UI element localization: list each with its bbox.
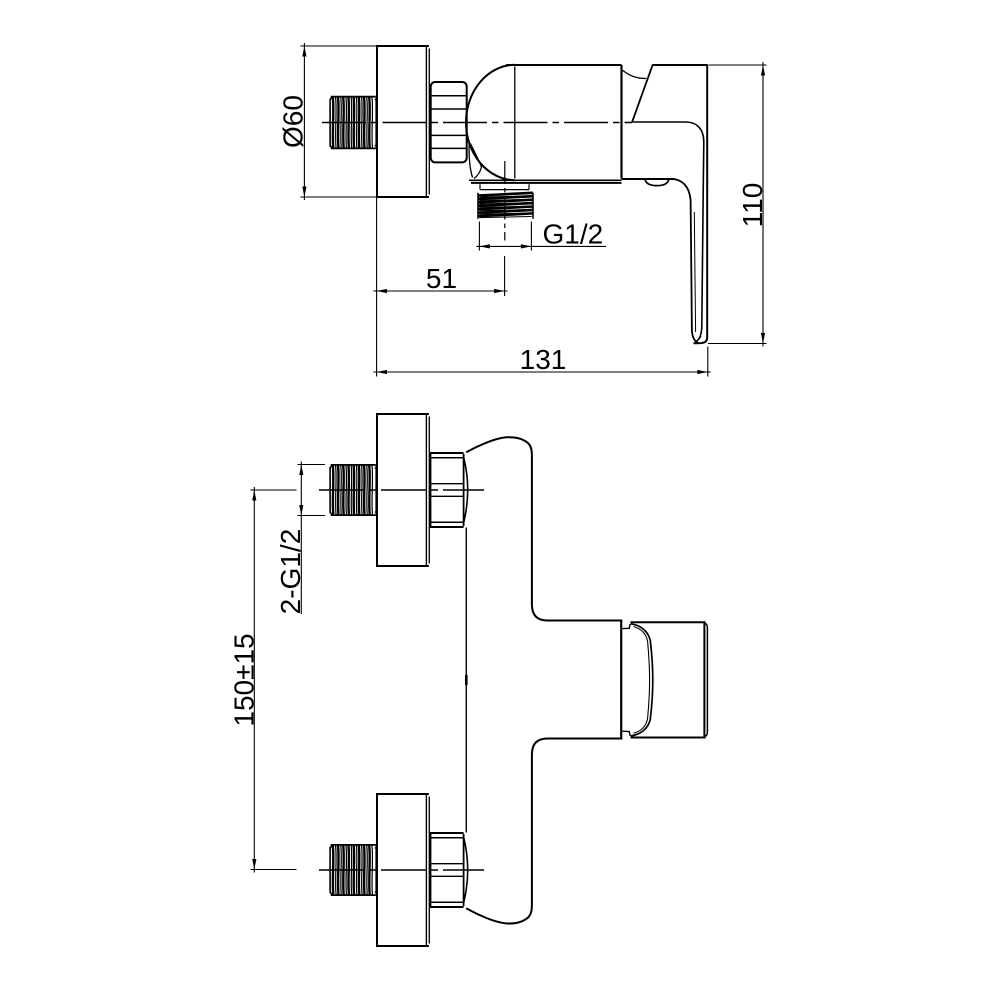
svg-text:150±15: 150±15 (229, 633, 260, 726)
svg-text:Ø60: Ø60 (278, 95, 309, 148)
svg-text:110: 110 (737, 183, 768, 228)
svg-text:131: 131 (520, 344, 567, 375)
svg-text:2-G1/2: 2-G1/2 (275, 529, 306, 615)
svg-text:51: 51 (426, 263, 457, 294)
svg-text:G1/2: G1/2 (543, 219, 604, 250)
